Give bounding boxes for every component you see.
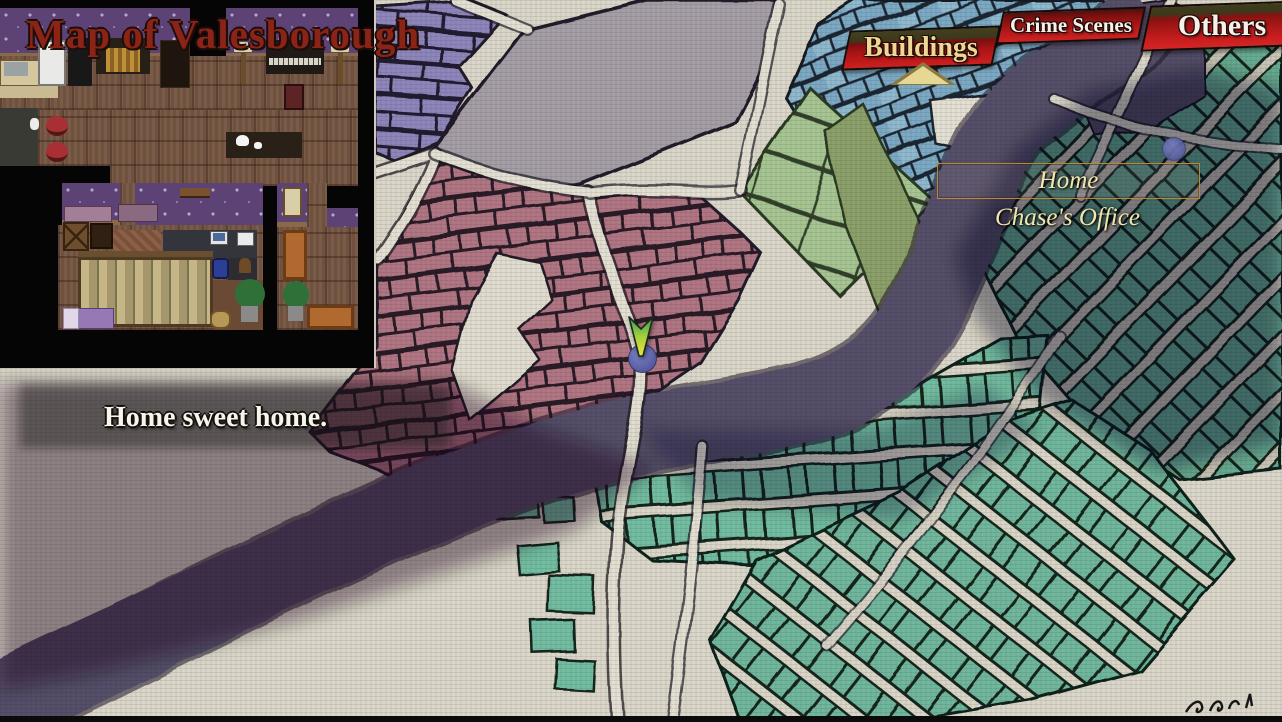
inset-red-chair xyxy=(284,84,304,110)
inset-teapot xyxy=(236,135,249,146)
inset-monitor-screen xyxy=(213,233,225,241)
inset-printer xyxy=(237,232,254,246)
inset-stool xyxy=(46,142,68,162)
tab-others[interactable]: Others xyxy=(1146,3,1282,49)
selected-tab-pointer-icon xyxy=(897,66,949,84)
inset-side-table xyxy=(118,204,158,222)
map-bottom-border xyxy=(0,716,1282,722)
page-title: Map of Valesborough xyxy=(26,10,420,58)
inset-radio xyxy=(239,258,251,273)
home-location-label-box[interactable]: Home xyxy=(937,163,1200,199)
inset-floor xyxy=(307,183,327,230)
inset-couch xyxy=(307,305,354,329)
inset-stool xyxy=(46,116,68,136)
inset-teacup xyxy=(254,142,262,149)
inset-plant-pot xyxy=(288,306,303,321)
inset-cabinet xyxy=(90,223,113,249)
inset-office-chair xyxy=(212,258,229,279)
inset-sink xyxy=(4,62,28,76)
inset-piano-keys xyxy=(269,58,321,65)
inset-plant-pot xyxy=(241,306,258,322)
inset-plant-leaves xyxy=(235,279,265,309)
inset-counter xyxy=(0,86,58,98)
inset-couch xyxy=(283,230,307,280)
signature-scribble xyxy=(1186,694,1252,712)
inset-side-table xyxy=(64,206,112,222)
tab-label: Crime Scenes xyxy=(1000,9,1142,42)
tab-label: Others xyxy=(1146,3,1282,49)
inset-plant-leaves xyxy=(283,281,309,309)
tab-crime-scenes[interactable]: Crime Scenes xyxy=(1000,9,1142,42)
inset-crate xyxy=(63,222,89,251)
inset-floor xyxy=(38,110,358,166)
inset-purple-bed-pillow xyxy=(63,308,79,329)
player-marker-icon[interactable] xyxy=(628,316,654,358)
inset-cat-sprite xyxy=(30,118,39,130)
home-marker-dot[interactable] xyxy=(1162,137,1186,161)
inset-basket xyxy=(210,310,231,329)
inset-purple-bed xyxy=(78,308,114,329)
inset-wall-shelf xyxy=(180,188,210,198)
chase-office-location-label[interactable]: Chase's Office xyxy=(960,204,1175,232)
caption-text: Home sweet home. xyxy=(104,402,327,434)
inset-grandfather-clock xyxy=(283,187,302,217)
inset-dark-room xyxy=(0,108,38,166)
game-map-screen: Map of Valesborough Buildings Crime Scen… xyxy=(0,0,1282,722)
home-location-label: Home xyxy=(1039,167,1099,195)
